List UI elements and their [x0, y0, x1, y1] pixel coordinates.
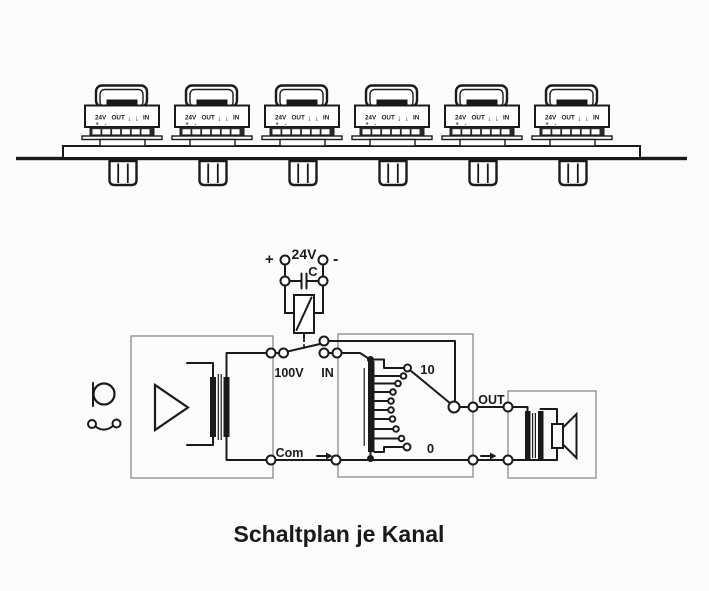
amplifier-symbol — [155, 385, 188, 430]
speaker-high-terminal — [504, 403, 513, 412]
microphone-icon — [93, 383, 115, 406]
volume-selector: 10 0 — [342, 353, 460, 462]
supply-voltage-label: 24V — [292, 246, 318, 262]
tap-contact — [390, 416, 396, 422]
terminal-100v — [267, 349, 276, 358]
flow-arrow-icon — [481, 453, 497, 460]
capacitor-node-left — [281, 277, 290, 286]
tap-contact — [388, 398, 394, 404]
minus-terminal — [319, 256, 328, 265]
supply-24v: + 24V - C — [265, 246, 338, 349]
tap-contact — [393, 426, 399, 432]
tap-contact — [399, 436, 405, 442]
tap-contact — [395, 381, 401, 387]
label-tap-0: 0 — [427, 441, 434, 456]
switch-pivot-contact — [279, 349, 288, 358]
speaker-low-terminal — [504, 456, 513, 465]
amplifier-box — [131, 336, 273, 478]
tap-0-contact — [404, 444, 411, 451]
out-row: OUT — [460, 393, 513, 412]
transformer-module-5 — [442, 86, 522, 147]
transformer-module-1 — [82, 86, 162, 147]
speaker-icon — [552, 414, 577, 458]
label-com: Com — [276, 446, 304, 460]
din-rail — [63, 146, 640, 158]
terminal-com — [267, 456, 276, 465]
wiper-terminal — [449, 402, 460, 413]
terminal-out — [469, 403, 478, 412]
amp-triangle-icon — [155, 385, 188, 430]
transformer-module-2 — [172, 86, 252, 147]
label-in: IN — [321, 366, 334, 380]
cable-gland-2 — [200, 158, 227, 186]
terminal-in — [333, 349, 342, 358]
speaker-circuit — [513, 407, 577, 460]
attenuator-out-low-terminal — [469, 456, 478, 465]
attenuator-com-terminal — [332, 456, 341, 465]
tap-contact — [401, 373, 407, 379]
cable-gland-1 — [110, 158, 137, 186]
transformer-module-6 — [532, 86, 612, 147]
label-out: OUT — [478, 393, 505, 407]
capacitor-label: C — [308, 264, 318, 279]
switch-in-contact — [320, 349, 329, 358]
relay-coil — [294, 295, 314, 333]
top-assembly — [16, 86, 687, 186]
line-input-icon — [88, 420, 121, 430]
cable-gland-5 — [470, 158, 497, 186]
cable-gland-3 — [290, 158, 317, 186]
flow-arrow-icon — [317, 453, 333, 460]
cable-gland-6 — [560, 158, 587, 186]
com-bus: Com — [267, 446, 513, 465]
junction-dot — [367, 455, 374, 462]
capacitor-node-right — [319, 277, 328, 286]
capacitor: C — [290, 264, 319, 289]
plus-terminal-label: + — [265, 251, 274, 268]
amp-output-transformer — [187, 353, 267, 460]
tap-contact — [390, 389, 396, 395]
diagram-canvas: 24V + - OUT ↓ ↓ IN — [0, 0, 709, 591]
transformer-module-3 — [262, 86, 342, 147]
tap-contact — [388, 407, 394, 413]
schematic: + 24V - C — [88, 246, 596, 478]
transformer-module-4 — [352, 86, 432, 147]
cable-gland-4 — [380, 158, 407, 186]
label-tap-10: 10 — [420, 362, 434, 377]
label-100v: 100V — [274, 366, 304, 380]
minus-terminal-label: - — [333, 251, 338, 268]
switch-bypass-contact — [320, 337, 329, 346]
plus-terminal — [281, 256, 290, 265]
scanned-diagram-page: 24V + - OUT ↓ ↓ IN — [0, 0, 709, 591]
diagram-title: Schaltplan je Kanal — [234, 521, 445, 547]
